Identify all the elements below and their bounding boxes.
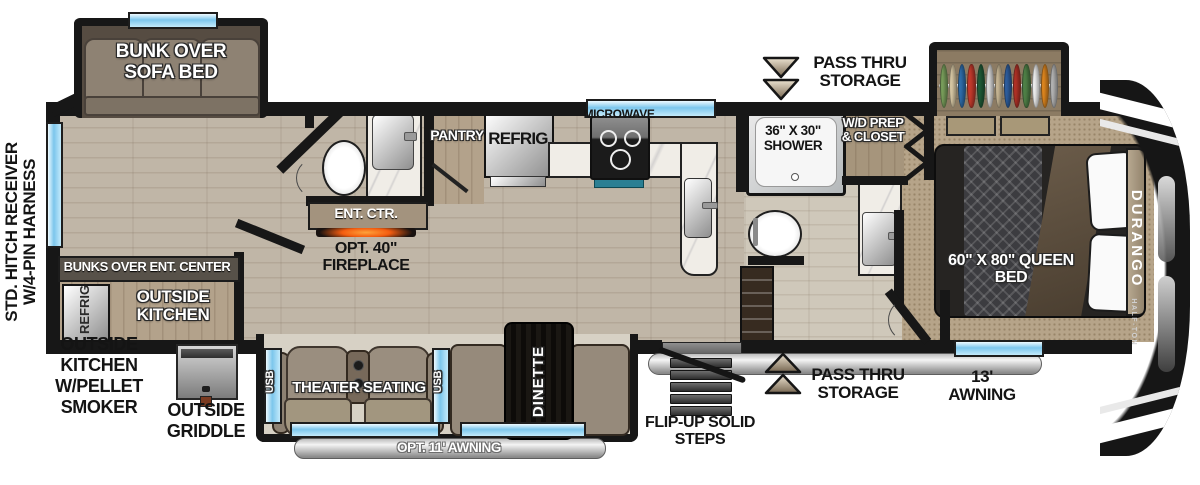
hanging-garment — [958, 64, 966, 108]
hanging-garment — [1013, 64, 1021, 108]
brand-text: DURANGO HALF-TON — [1123, 168, 1145, 368]
awning-13ft-label: 13' AWNING — [936, 368, 1028, 405]
stove-cooktop — [590, 116, 650, 180]
hitch-line1: STD. HITCH RECEIVER — [3, 117, 21, 347]
shower-drain — [791, 173, 799, 181]
burner — [624, 130, 641, 147]
shower-label: 36" X 30" SHOWER — [752, 124, 834, 153]
bunks-over-ent-center-label: BUNKS OVER ENT. CENTER — [58, 260, 236, 274]
microwave-label: MICROWAVE — [578, 108, 660, 121]
brand-sub: HALF-TON — [1130, 298, 1137, 346]
queen-bed-label: 60" X 80" QUEEN BED — [946, 252, 1076, 287]
wall-midbath-right — [424, 106, 434, 206]
midbath-door-arc — [296, 158, 336, 198]
wall-kitchen-bath — [736, 106, 748, 192]
closet-slideout — [929, 42, 1069, 116]
bedroom-window — [954, 340, 1044, 357]
hanging-garment — [1041, 64, 1049, 108]
wall-midbath-stub — [305, 110, 314, 128]
hanging-garment — [967, 64, 975, 108]
burner — [610, 149, 631, 170]
bedroom-door-arc — [888, 298, 932, 342]
bedroom-steps — [740, 266, 774, 344]
hitch-receiver-label: STD. HITCH RECEIVER W/4-PIN HARNESS — [3, 117, 45, 347]
rv-floorplan: BUNK OVER SOFA BED BUNKS OVER ENT. CENTE… — [0, 0, 1200, 485]
rear-wall-window — [46, 122, 63, 248]
pass-thru-arrow-down-icon — [760, 56, 802, 102]
pass-thru-bottom-label: PASS THRU STORAGE — [798, 366, 918, 403]
hanging-garment — [1050, 64, 1058, 108]
griddle-top — [181, 349, 233, 358]
nightstand — [1000, 116, 1050, 136]
fireplace-unit — [316, 228, 416, 237]
cap-panel — [1158, 176, 1175, 262]
bath-toilet-tank-line — [753, 218, 758, 246]
outside-griddle-unit — [176, 344, 238, 400]
cupholder — [353, 360, 364, 371]
griddle-knob — [202, 386, 210, 392]
burner — [600, 130, 617, 147]
step-tread — [670, 382, 732, 392]
hitch-line2: W/4-PIN HARNESS — [21, 117, 39, 347]
wd-closet-label: W/D PREP & CLOSET — [840, 116, 906, 144]
ent-ctr-label: ENT. CTR. — [308, 206, 424, 221]
usb-label-left: USB — [265, 365, 277, 399]
hanging-garment — [1032, 64, 1040, 108]
outside-kitchen-label: OUTSIDE KITCHEN — [110, 288, 236, 325]
wall-toilet-stub — [748, 256, 804, 265]
slide-window-left — [290, 422, 440, 438]
usb-label-right: USB — [433, 365, 445, 399]
hanging-garment — [940, 64, 948, 108]
outside-kitchen-smoker-label: OUTSIDE KITCHEN W/PELLET SMOKER — [40, 334, 158, 418]
cap-panel — [1158, 276, 1175, 372]
pass-thru-top-label: PASS THRU STORAGE — [800, 54, 920, 91]
hanging-garment — [1022, 64, 1030, 108]
slide-window-right — [460, 422, 586, 438]
midbath-sink — [372, 114, 414, 170]
outside-refrigerator-label: REFRIG — [78, 288, 92, 334]
bunk-slide-window — [128, 12, 218, 29]
theater-seating-label: THEATER SEATING — [276, 380, 442, 396]
pantry-label: PANTRY — [422, 128, 492, 143]
bunk-sofa-label: BUNK OVER SOFA BED — [92, 42, 250, 83]
fireplace-label: OPT. 40" FIREPLACE — [306, 240, 426, 275]
hanging-garment — [977, 64, 985, 108]
midbath-faucet — [404, 132, 417, 141]
hanging-garment — [995, 64, 1003, 108]
refrigerator-drawer — [490, 176, 546, 187]
outside-griddle-label: OUTSIDE GRIDDLE — [154, 400, 258, 442]
pantry-floor — [432, 110, 484, 204]
wall-vanity — [894, 210, 904, 306]
hanging-garment — [949, 64, 957, 108]
flip-up-steps-label: FLIP-UP SOLID STEPS — [636, 414, 764, 449]
brand-name: DURANGO — [1128, 190, 1145, 289]
front-cap: DURANGO HALF-TON — [1100, 80, 1190, 456]
closet-clothes — [940, 64, 1058, 108]
hanging-garment — [986, 64, 994, 108]
wall-wd-bottom — [842, 176, 908, 185]
wall-bedroom-bottom-stub — [940, 290, 950, 352]
hanging-garment — [1004, 64, 1012, 108]
step-tread — [670, 394, 732, 404]
awning-opt11-label: OPT. 11' AWNING — [294, 441, 604, 456]
sofa-seat-front — [84, 96, 260, 116]
nightstand — [946, 116, 996, 136]
refrig-label: REFRIG — [484, 130, 552, 148]
kitchen-faucet — [702, 202, 718, 209]
dinette-label: DINETTE — [531, 345, 548, 416]
